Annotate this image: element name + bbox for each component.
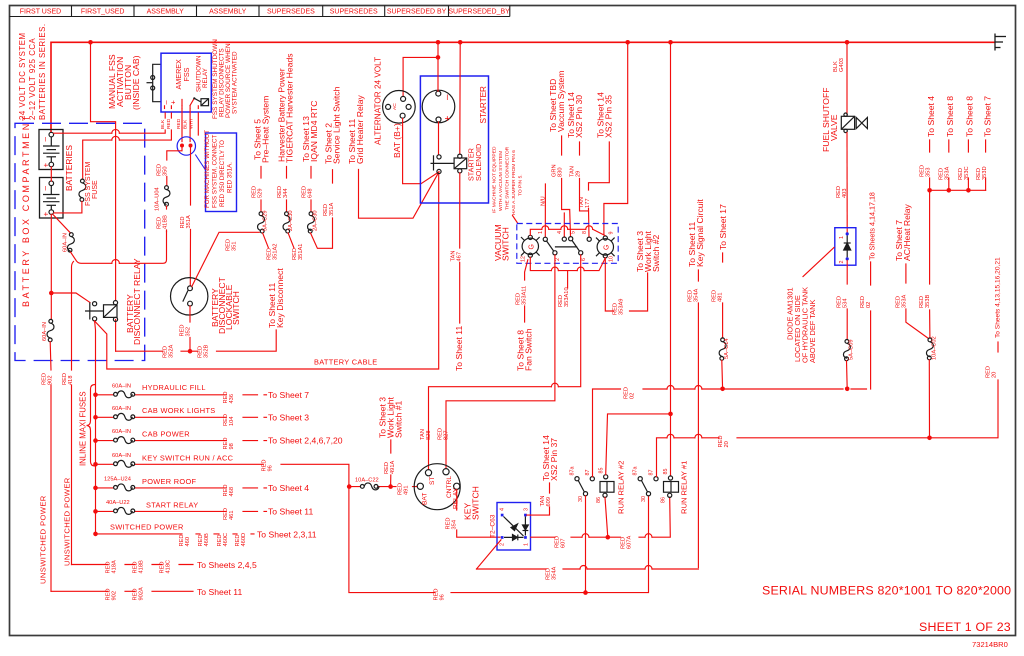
svg-text:461: 461 bbox=[229, 511, 235, 521]
svg-text:+: + bbox=[42, 212, 51, 217]
svg-text:60A–IN: 60A–IN bbox=[112, 453, 131, 459]
svg-text:SWITCH: SWITCH bbox=[231, 291, 241, 325]
svg-text:SUPERSEDED_BY: SUPERSEDED_BY bbox=[448, 8, 510, 15]
svg-text:351A2: 351A2 bbox=[273, 244, 279, 260]
svg-text:60A–IN: 60A–IN bbox=[63, 233, 69, 252]
svg-text:460C: 460C bbox=[223, 533, 229, 547]
svg-text:POWER ROOF: POWER ROOF bbox=[142, 477, 197, 486]
svg-text:29: 29 bbox=[576, 171, 582, 177]
svg-text:40A–U22: 40A–U22 bbox=[106, 500, 130, 506]
svg-text:830: 830 bbox=[558, 168, 564, 178]
svg-text:403: 403 bbox=[842, 189, 848, 199]
svg-text:2: 2 bbox=[839, 261, 845, 264]
svg-text:353A11: 353A11 bbox=[522, 286, 528, 305]
svg-text:460B: 460B bbox=[204, 533, 210, 546]
svg-text:354: 354 bbox=[452, 520, 458, 530]
svg-text:FIRST_USED: FIRST_USED bbox=[81, 8, 125, 15]
svg-text:AC: AC bbox=[392, 103, 398, 110]
svg-text:To Sheet 7: To Sheet 7 bbox=[983, 96, 993, 137]
svg-text:60A–IN: 60A–IN bbox=[112, 383, 131, 389]
svg-text:To Sheets 2,4,5: To Sheets 2,4,5 bbox=[197, 560, 257, 570]
svg-text:353A9: 353A9 bbox=[619, 299, 625, 315]
svg-text:BAT: BAT bbox=[422, 493, 429, 505]
svg-text:Pre–Heat System: Pre–Heat System bbox=[260, 96, 270, 163]
svg-text:XS2 Pin 30: XS2 Pin 30 bbox=[574, 95, 584, 138]
svg-text:534: 534 bbox=[843, 299, 849, 309]
svg-text:467: 467 bbox=[457, 252, 463, 262]
svg-text:To Sheet 11: To Sheet 11 bbox=[268, 507, 313, 517]
svg-text:UNSWITCHED POWER: UNSWITCHED POWER bbox=[39, 495, 48, 584]
svg-text:73214BR0: 73214BR0 bbox=[972, 640, 1008, 649]
svg-text:SWITCHED POWER: SWITCHED POWER bbox=[110, 522, 184, 531]
svg-text:BLK: BLK bbox=[182, 119, 188, 129]
svg-text:Vaccum System: Vaccum System bbox=[556, 71, 566, 132]
svg-text:104: 104 bbox=[229, 417, 235, 427]
svg-text:491: 491 bbox=[404, 486, 410, 496]
svg-text:ABOVE DEF TANK: ABOVE DEF TANK bbox=[808, 300, 817, 363]
svg-text:4: 4 bbox=[557, 231, 563, 234]
svg-text:85: 85 bbox=[663, 469, 669, 475]
svg-text:To Sheet 7: To Sheet 7 bbox=[268, 390, 309, 400]
svg-text:IQAN MD4 RTC: IQAN MD4 RTC bbox=[309, 101, 319, 162]
svg-text:2: 2 bbox=[500, 543, 506, 546]
svg-text:418C: 418C bbox=[166, 560, 172, 574]
svg-text:1: 1 bbox=[538, 231, 544, 234]
svg-text:436: 436 bbox=[229, 394, 235, 404]
svg-text:RELAY: RELAY bbox=[453, 487, 460, 509]
svg-text:Key Disconnect: Key Disconnect bbox=[275, 268, 285, 328]
svg-text:2A–C30: 2A–C30 bbox=[288, 210, 294, 231]
svg-text:To Sheet 8: To Sheet 8 bbox=[945, 96, 955, 137]
svg-text:–: – bbox=[41, 186, 50, 191]
svg-text:BATTERY CABLE: BATTERY CABLE bbox=[314, 358, 377, 367]
svg-text:607: 607 bbox=[561, 539, 567, 549]
svg-text:CAB POWER: CAB POWER bbox=[142, 430, 190, 439]
svg-text:SERIAL NUMBERS 820*1001 TO 820: SERIAL NUMBERS 820*1001 TO 820*2000 bbox=[762, 584, 1011, 598]
svg-text:ASSEMBLY: ASSEMBLY bbox=[209, 8, 247, 15]
svg-text:96: 96 bbox=[440, 594, 446, 600]
svg-text:30: 30 bbox=[578, 496, 584, 502]
svg-text:AC/Heat Relay: AC/Heat Relay bbox=[902, 203, 912, 261]
svg-text:+: + bbox=[169, 100, 178, 105]
svg-text:RED: RED bbox=[166, 118, 172, 129]
svg-text:353B: 353B bbox=[925, 295, 931, 308]
svg-text:351A: 351A bbox=[329, 203, 335, 216]
svg-text:SUPERSEDES: SUPERSEDES bbox=[330, 8, 378, 15]
svg-text:SYSTEM ACTIVATED: SYSTEM ACTIVATED bbox=[232, 51, 239, 114]
svg-text:481: 481 bbox=[718, 293, 724, 303]
svg-text:60A–IN: 60A–IN bbox=[112, 406, 131, 412]
svg-text:Switch #1: Switch #1 bbox=[394, 401, 404, 438]
svg-text:648: 648 bbox=[308, 189, 314, 199]
svg-text:87a: 87a bbox=[570, 467, 576, 476]
svg-text:418A: 418A bbox=[112, 560, 118, 573]
svg-text:607A: 607A bbox=[627, 536, 633, 549]
svg-text:WITH A VACUUM SYSTEM: WITH A VACUUM SYSTEM bbox=[498, 151, 504, 211]
svg-text:86: 86 bbox=[661, 497, 667, 503]
svg-text:N/U: N/U bbox=[541, 196, 547, 206]
svg-text:827: 827 bbox=[444, 431, 450, 441]
svg-text:HAS A JUMPER FROM PIN 6: HAS A JUMPER FROM PIN 6 bbox=[511, 150, 517, 215]
svg-text:SOLENOID: SOLENOID bbox=[474, 144, 483, 181]
svg-text:529: 529 bbox=[258, 189, 264, 199]
svg-text:Key Signal Circuit: Key Signal Circuit bbox=[695, 199, 705, 267]
svg-text:4: 4 bbox=[500, 508, 506, 511]
svg-text:Fan Switch: Fan Switch bbox=[524, 328, 534, 371]
svg-text:354A: 354A bbox=[552, 567, 558, 580]
svg-text:SUPERSEDES: SUPERSEDES bbox=[267, 8, 315, 15]
svg-text:SWITCH: SWITCH bbox=[471, 486, 481, 520]
svg-text:RED: RED bbox=[176, 118, 182, 129]
svg-text:351A: 351A bbox=[186, 215, 192, 228]
svg-text:87: 87 bbox=[585, 470, 591, 476]
svg-text:–: – bbox=[442, 94, 453, 100]
svg-text:ST: ST bbox=[429, 477, 436, 485]
svg-text:460: 460 bbox=[185, 537, 191, 547]
svg-text:353A: 353A bbox=[902, 295, 908, 308]
svg-text:10A–U04: 10A–U04 bbox=[155, 187, 161, 211]
svg-text:353: 353 bbox=[926, 168, 932, 178]
svg-text:INLINE MAXI FUSES: INLINE MAXI FUSES bbox=[79, 391, 88, 466]
svg-text:9: 9 bbox=[609, 232, 615, 235]
svg-text:352B: 352B bbox=[204, 345, 210, 358]
svg-text:96: 96 bbox=[268, 465, 274, 471]
svg-text:START RELAY: START RELAY bbox=[146, 500, 198, 509]
svg-text:354A: 354A bbox=[694, 289, 700, 302]
svg-text:30: 30 bbox=[641, 496, 647, 502]
svg-text:VALVE: VALVE bbox=[829, 114, 839, 141]
svg-text:SUPERSEDED BY: SUPERSEDED BY bbox=[387, 8, 447, 15]
svg-text:+: + bbox=[443, 116, 454, 122]
svg-text:60A–IN: 60A–IN bbox=[42, 322, 48, 341]
svg-text:20: 20 bbox=[724, 441, 730, 447]
svg-text:XS2 Pin 35: XS2 Pin 35 bbox=[604, 95, 614, 138]
svg-text:FSS SYSTEM: FSS SYSTEM bbox=[85, 161, 92, 206]
svg-text:FUSE: FUSE bbox=[92, 180, 99, 199]
svg-text:RUN RELAY #1: RUN RELAY #1 bbox=[680, 461, 689, 514]
svg-text:WHT: WHT bbox=[189, 118, 195, 129]
svg-text:STARTER: STARTER bbox=[479, 86, 488, 124]
svg-text:To Sheets 4,13,15,16,20,21: To Sheets 4,13,15,16,20,21 bbox=[995, 257, 1002, 338]
svg-text:To Sheets 4,14,17,18: To Sheets 4,14,17,18 bbox=[868, 192, 877, 260]
svg-text:98: 98 bbox=[229, 443, 235, 449]
svg-text:86: 86 bbox=[596, 497, 602, 503]
svg-text:24 VOLT DC SYSTEM: 24 VOLT DC SYSTEM bbox=[18, 33, 27, 121]
svg-text:491A: 491A bbox=[390, 461, 396, 474]
svg-text:To Sheet 2,4,6,7,20: To Sheet 2,4,6,7,20 bbox=[268, 436, 343, 446]
svg-text:1: 1 bbox=[839, 236, 845, 239]
svg-text:2A–C30: 2A–C30 bbox=[313, 210, 319, 231]
svg-text:ASSEMBLY: ASSEMBLY bbox=[147, 8, 185, 15]
svg-text:460D: 460D bbox=[241, 533, 247, 547]
svg-text:5A–C09: 5A–C09 bbox=[849, 339, 855, 360]
svg-text:UNSWITCHED POWER: UNSWITCHED POWER bbox=[63, 477, 72, 566]
svg-text:SWITCH: SWITCH bbox=[501, 227, 511, 261]
svg-text:To Sheet 17: To Sheet 17 bbox=[718, 204, 728, 250]
svg-text:02: 02 bbox=[630, 393, 636, 399]
svg-text:To Sheet 11: To Sheet 11 bbox=[454, 326, 464, 371]
svg-text:IF MACHINE NOT EQUIPPED: IF MACHINE NOT EQUIPPED bbox=[492, 146, 498, 213]
svg-text:RELAY: RELAY bbox=[202, 68, 209, 88]
svg-text:5A–C14: 5A–C14 bbox=[724, 338, 730, 359]
svg-text:1: 1 bbox=[524, 543, 530, 546]
svg-text:5A–C29: 5A–C29 bbox=[263, 210, 269, 231]
svg-text:+: + bbox=[42, 163, 51, 168]
svg-text:8: 8 bbox=[582, 231, 588, 234]
svg-text:BATTERY BOX COMPARTMENT: BATTERY BOX COMPARTMENT bbox=[21, 113, 31, 307]
svg-text:To Sheet 8: To Sheet 8 bbox=[965, 96, 975, 137]
svg-text:G403: G403 bbox=[839, 58, 845, 72]
svg-text:DISCONNECT RELAY: DISCONNECT RELAY bbox=[132, 258, 142, 345]
svg-text:RED 351A.: RED 351A. bbox=[227, 162, 234, 193]
svg-text:G: G bbox=[604, 245, 611, 250]
svg-text:FIRST USED: FIRST USED bbox=[20, 8, 62, 15]
svg-text:Service Light Switch: Service Light Switch bbox=[331, 86, 341, 164]
svg-text:BAT (B+): BAT (B+) bbox=[392, 123, 402, 158]
svg-text:468: 468 bbox=[229, 487, 235, 497]
svg-text:60A–IN: 60A–IN bbox=[112, 429, 131, 435]
svg-text:KEY SWITCH RUN / ACC: KEY SWITCH RUN / ACC bbox=[142, 453, 234, 462]
svg-text:2–12 VOLT 925 CCA: 2–12 VOLT 925 CCA bbox=[28, 37, 37, 120]
svg-text:177: 177 bbox=[585, 199, 591, 209]
svg-text:20: 20 bbox=[992, 372, 998, 378]
svg-text:352A: 352A bbox=[169, 345, 175, 358]
svg-text:To Sheet 2,3,11: To Sheet 2,3,11 bbox=[257, 529, 317, 539]
svg-text:353D: 353D bbox=[982, 166, 988, 180]
svg-text:T2–C63: T2–C63 bbox=[490, 514, 497, 538]
svg-text:Grid Heater Relay: Grid Heater Relay bbox=[355, 95, 365, 164]
svg-text:(INSIDE CAB): (INSIDE CAB) bbox=[131, 55, 141, 110]
svg-text:353C: 353C bbox=[964, 166, 970, 180]
svg-text:TO PIN 5.: TO PIN 5. bbox=[518, 174, 524, 196]
svg-text:125A–U24: 125A–U24 bbox=[104, 476, 131, 482]
svg-text:BLK: BLK bbox=[160, 119, 166, 129]
svg-text:87: 87 bbox=[649, 470, 655, 476]
svg-text:3: 3 bbox=[524, 508, 530, 511]
svg-text:THE SWITCH CONNECTOR: THE SWITCH CONNECTOR bbox=[505, 146, 511, 210]
svg-text:RUN RELAY #2: RUN RELAY #2 bbox=[617, 461, 626, 514]
svg-text:902: 902 bbox=[112, 591, 118, 601]
svg-text:10A–C22: 10A–C22 bbox=[355, 478, 379, 484]
svg-text:BATTERIES: BATTERIES bbox=[64, 145, 74, 191]
svg-text:609: 609 bbox=[546, 497, 552, 507]
svg-text:828: 828 bbox=[426, 431, 432, 441]
svg-text:353A: 353A bbox=[945, 167, 951, 180]
svg-text:To Sheet 11: To Sheet 11 bbox=[197, 587, 242, 597]
svg-text:350: 350 bbox=[163, 167, 169, 177]
svg-text:RED 350 DIRECTLY TO: RED 350 DIRECTLY TO bbox=[219, 140, 226, 207]
svg-text:418: 418 bbox=[68, 376, 74, 386]
svg-text:To Sheet 4: To Sheet 4 bbox=[268, 483, 309, 493]
svg-text:G: G bbox=[529, 244, 536, 249]
svg-text:FSS: FSS bbox=[182, 67, 191, 81]
svg-text:10: 10 bbox=[609, 256, 615, 262]
svg-text:12: 12 bbox=[521, 256, 527, 262]
svg-text:353A10: 353A10 bbox=[564, 287, 570, 307]
svg-text:2: 2 bbox=[555, 258, 561, 261]
svg-text:ALTERNATOR 24 VOLT: ALTERNATOR 24 VOLT bbox=[374, 57, 383, 145]
svg-text:352: 352 bbox=[186, 327, 192, 337]
svg-text:902A: 902A bbox=[139, 587, 145, 600]
svg-text:To Sheet 4: To Sheet 4 bbox=[926, 96, 936, 137]
svg-text:HYDRAULIC FILL: HYDRAULIC FILL bbox=[142, 383, 206, 392]
svg-text:10A–C02: 10A–C02 bbox=[932, 336, 938, 360]
svg-text:FSS SYSTEM, CONNECT: FSS SYSTEM, CONNECT bbox=[212, 135, 219, 208]
svg-text:FOR MACHINES WITHOUT: FOR MACHINES WITHOUT bbox=[204, 130, 211, 208]
svg-text:351A1: 351A1 bbox=[298, 244, 304, 260]
svg-text:902: 902 bbox=[48, 376, 54, 386]
svg-text:5: 5 bbox=[571, 231, 577, 234]
svg-text:TIGERCAT Harvester Heads: TIGERCAT Harvester Heads bbox=[284, 53, 294, 163]
svg-text:85: 85 bbox=[599, 468, 605, 474]
svg-text:CAB WORK LIGHTS: CAB WORK LIGHTS bbox=[142, 406, 216, 415]
svg-text:418B: 418B bbox=[139, 560, 145, 573]
svg-text:Switch #2: Switch #2 bbox=[651, 235, 661, 272]
svg-text:41BB: 41BB bbox=[163, 215, 169, 229]
svg-text:BATTERIES IN SERIES.: BATTERIES IN SERIES. bbox=[38, 23, 47, 120]
svg-text:02: 02 bbox=[866, 302, 872, 308]
svg-text:XS2 Pin 37: XS2 Pin 37 bbox=[549, 438, 559, 481]
svg-text:6: 6 bbox=[581, 258, 587, 261]
svg-text:344: 344 bbox=[283, 189, 289, 199]
svg-text:–: – bbox=[41, 137, 50, 142]
svg-text:To Sheet 3: To Sheet 3 bbox=[268, 412, 309, 422]
svg-text:87a: 87a bbox=[633, 467, 639, 476]
svg-text:SHEET 1 OF 23: SHEET 1 OF 23 bbox=[919, 620, 1011, 634]
svg-text:351: 351 bbox=[232, 242, 238, 252]
